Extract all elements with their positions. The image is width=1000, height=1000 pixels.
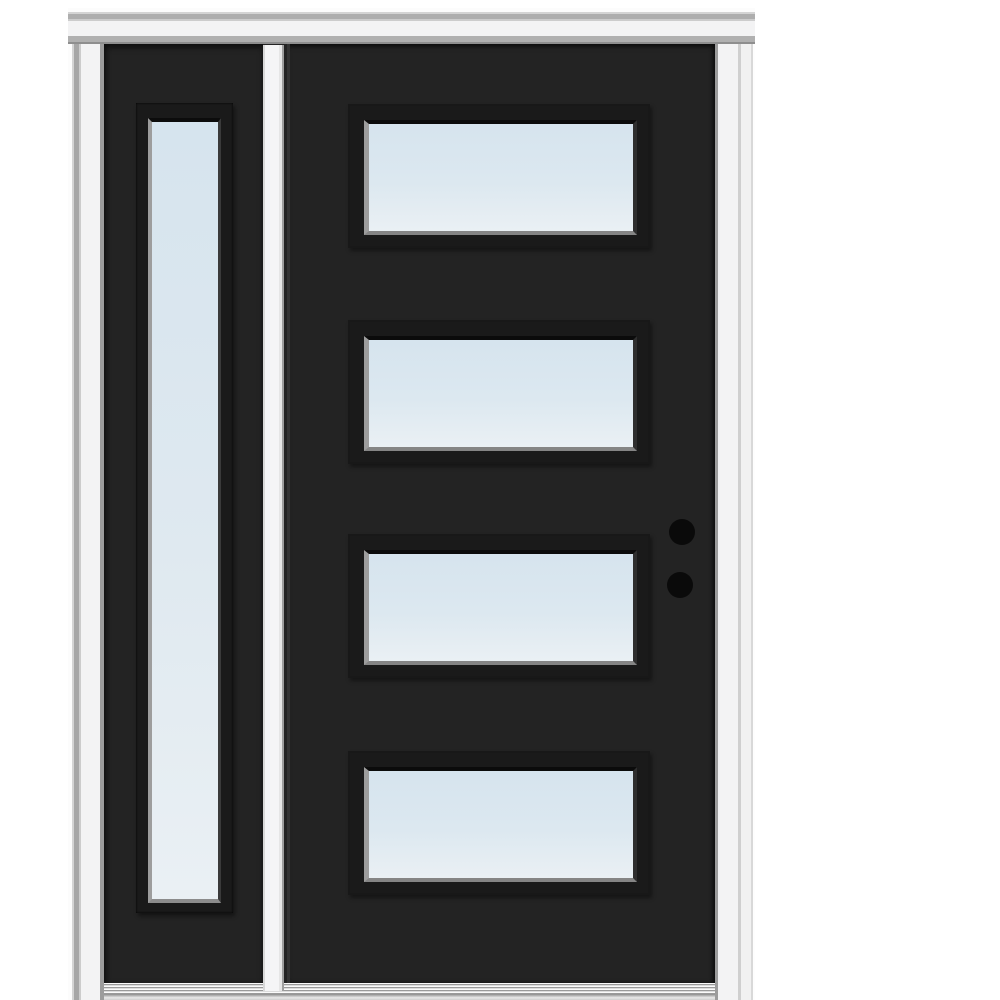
- mull-post: [263, 45, 284, 991]
- door-slab: [287, 44, 715, 983]
- door-lite-frame-2: [348, 320, 650, 464]
- door-lite-glass-3: [364, 550, 637, 665]
- frame-interior: [104, 44, 715, 983]
- door-sill: [104, 983, 716, 1000]
- sill-ridges: [104, 983, 716, 994]
- frame-left-casing: [68, 8, 104, 1000]
- door-lite-frame-3: [348, 534, 650, 678]
- door-lite-frame-1: [348, 104, 650, 248]
- sidelite-panel: [104, 44, 263, 983]
- frame-head-casing: [68, 8, 755, 44]
- sidelite-glass: [148, 118, 221, 903]
- sidelite-glass-frame: [136, 103, 233, 913]
- door-lite-glass-1: [364, 120, 637, 235]
- door-lite-glass-4: [364, 767, 637, 882]
- lockset-bore-hole: [667, 572, 693, 598]
- frame-right-casing: [715, 8, 755, 1000]
- sill-base: [104, 994, 716, 1000]
- door-lite-frame-4: [348, 751, 650, 895]
- door-lite-glass-2: [364, 336, 637, 451]
- product-image-door-with-sidelite: [0, 0, 1000, 1000]
- deadbolt-bore-hole: [669, 519, 695, 545]
